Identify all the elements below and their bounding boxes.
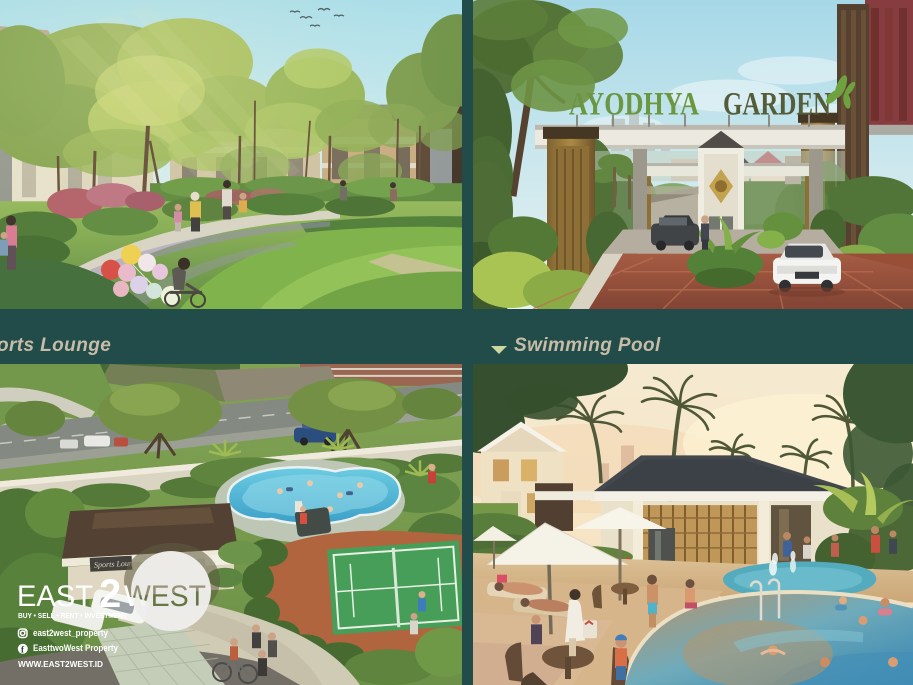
svg-text:WWW.EAST2WEST.ID: WWW.EAST2WEST.ID [18, 659, 103, 669]
svg-text:2: 2 [99, 572, 121, 616]
svg-text:EAST: EAST [17, 580, 93, 613]
svg-text:WEST: WEST [124, 580, 206, 613]
svg-text:EasttwoWest Property: EasttwoWest Property [33, 643, 119, 654]
svg-text:GARDEN: GARDEN [723, 87, 831, 123]
svg-text:BUY • SELL • RENT • INVESTMENT: BUY • SELL • RENT • INVESTMENT [18, 611, 127, 620]
svg-text:east2west_property: east2west_property [33, 628, 109, 639]
